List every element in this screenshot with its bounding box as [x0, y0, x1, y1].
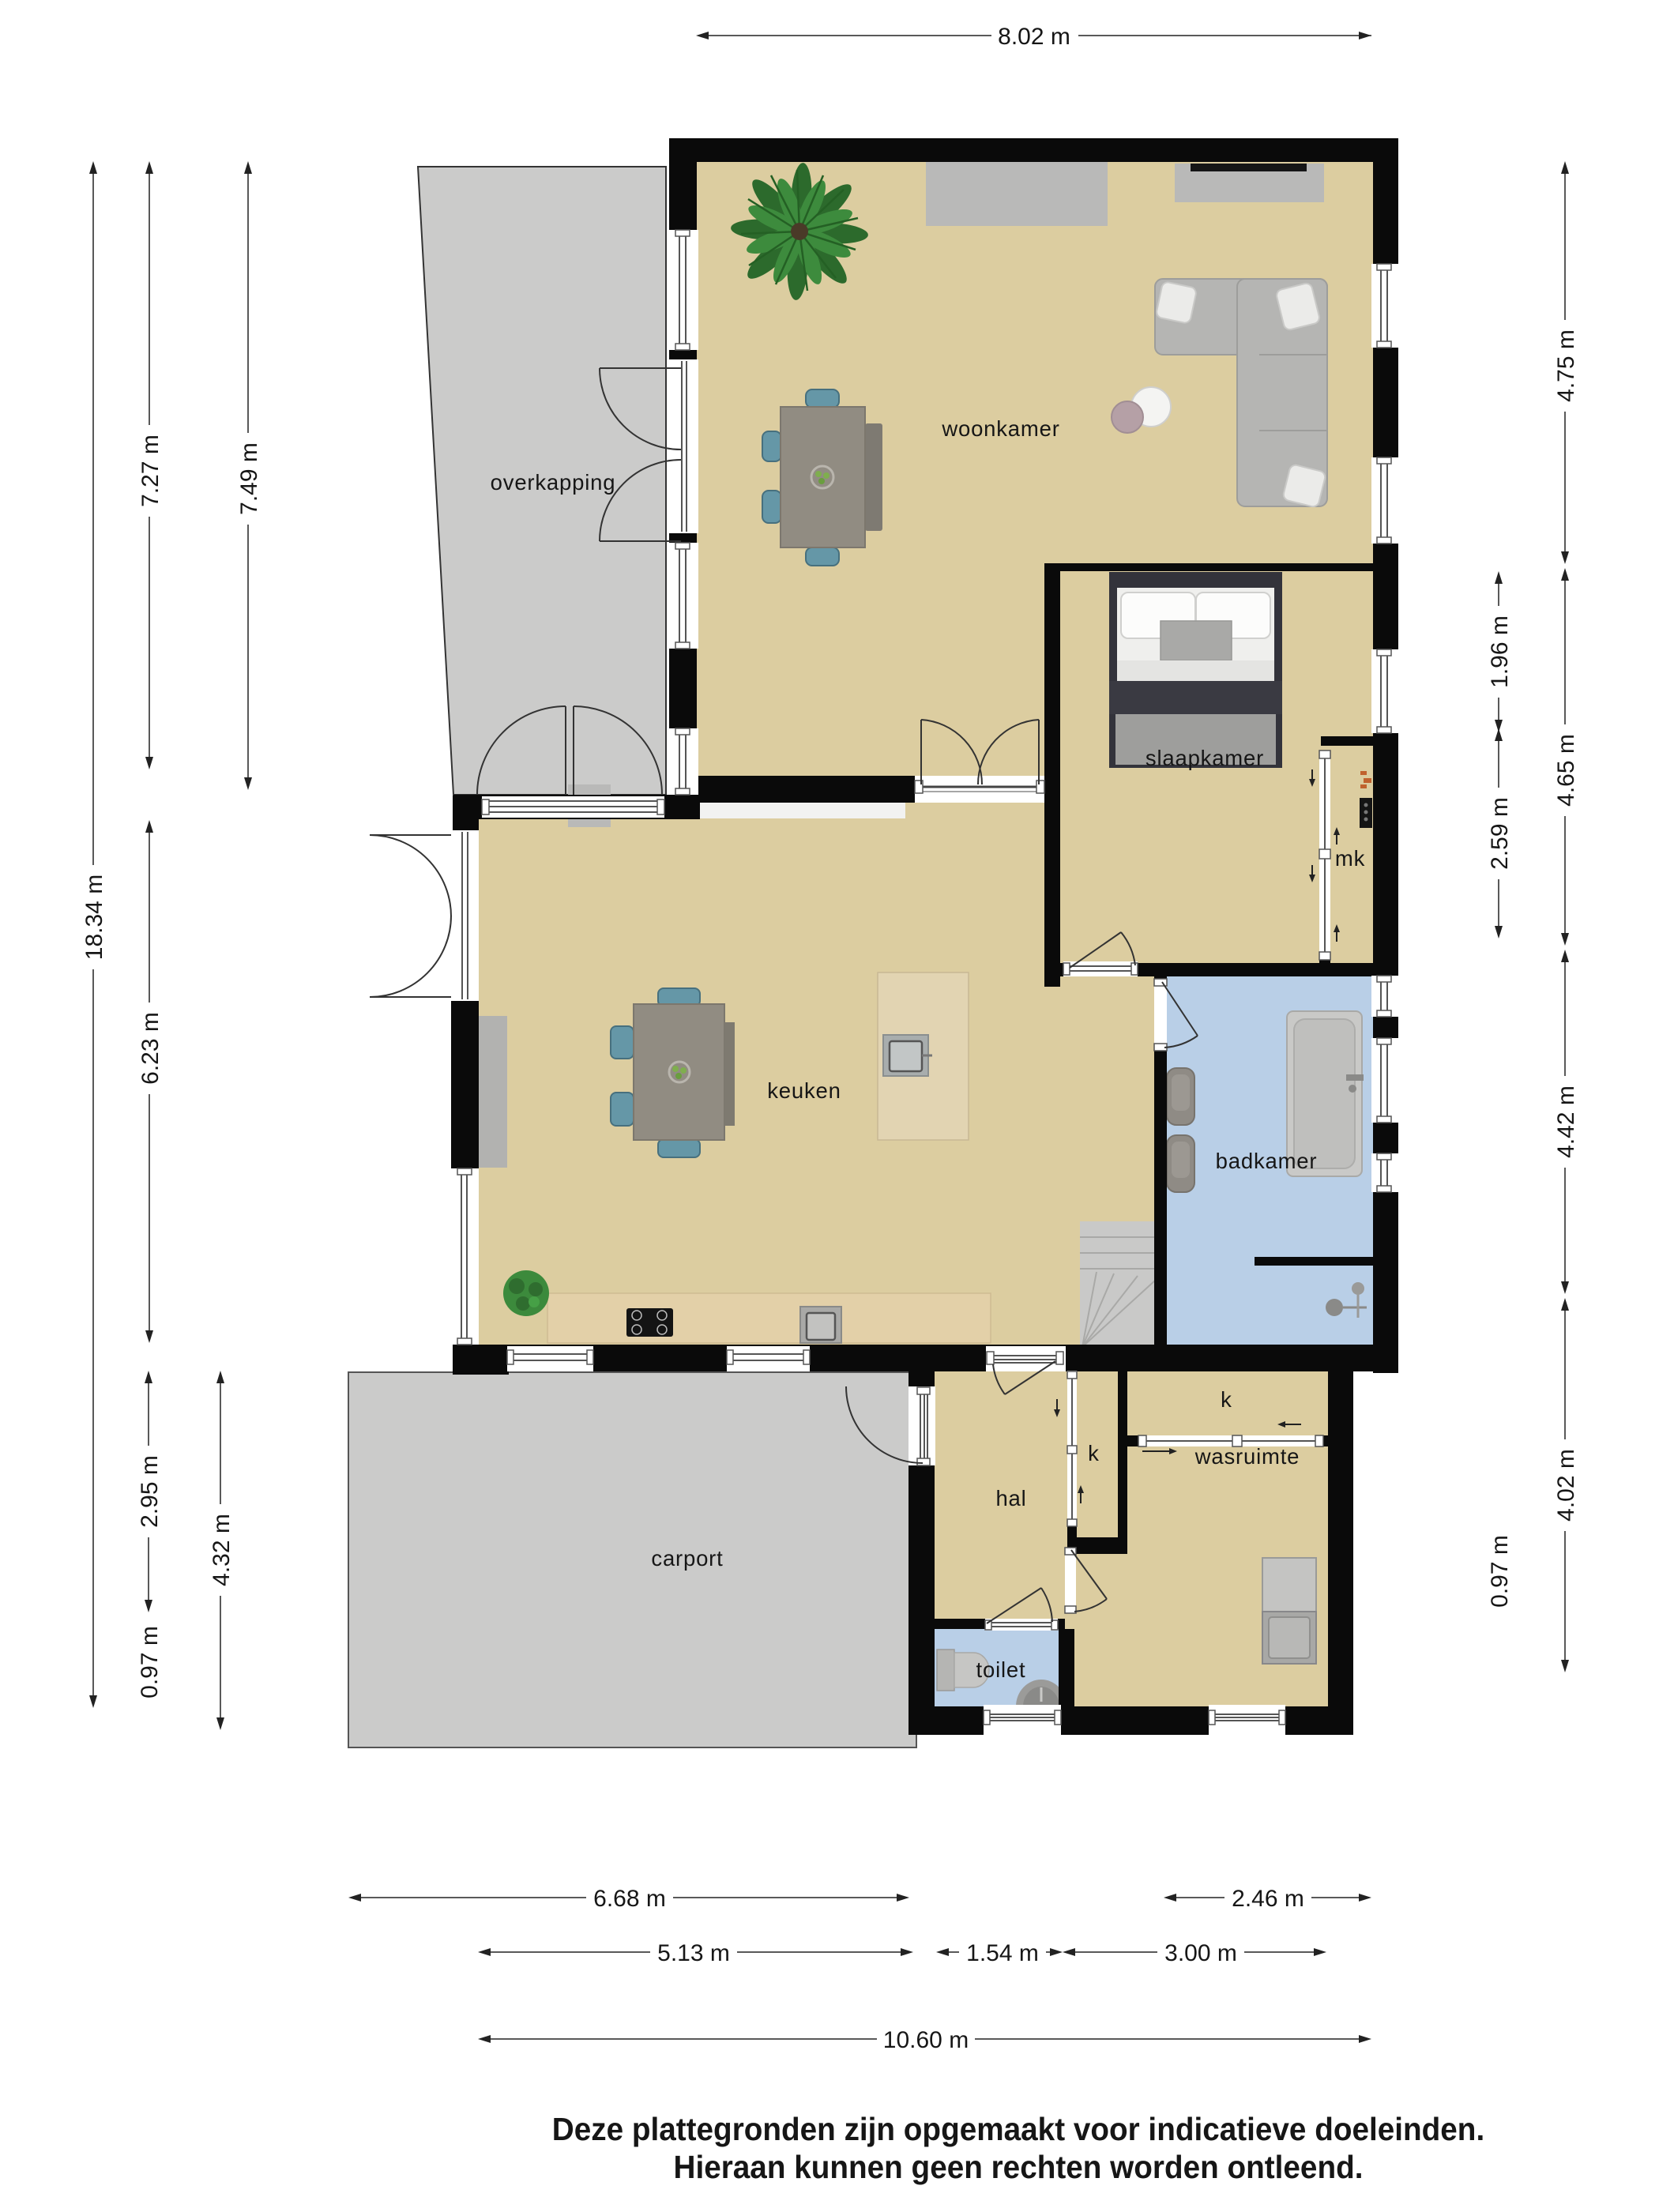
svg-text:toilet: toilet: [976, 1657, 1026, 1682]
svg-text:0.97 m: 0.97 m: [1487, 1535, 1513, 1608]
svg-text:8.02 m: 8.02 m: [998, 24, 1070, 50]
svg-text:4.32 m: 4.32 m: [209, 1514, 235, 1586]
svg-text:keuken: keuken: [767, 1078, 841, 1103]
svg-text:3.00 m: 3.00 m: [1164, 1940, 1237, 1966]
svg-text:wasruimte: wasruimte: [1194, 1444, 1300, 1469]
svg-text:6.23 m: 6.23 m: [137, 1012, 164, 1085]
svg-text:1.96 m: 1.96 m: [1487, 615, 1513, 688]
svg-text:10.60 m: 10.60 m: [883, 2027, 969, 2053]
svg-text:4.42 m: 4.42 m: [1553, 1085, 1579, 1158]
svg-text:badkamer: badkamer: [1216, 1149, 1318, 1173]
svg-text:woonkamer: woonkamer: [941, 416, 1059, 441]
svg-text:4.02 m: 4.02 m: [1553, 1449, 1579, 1522]
svg-text:1.54 m: 1.54 m: [966, 1940, 1039, 1966]
svg-text:5.13 m: 5.13 m: [657, 1940, 730, 1966]
svg-text:2.95 m: 2.95 m: [137, 1455, 163, 1528]
svg-text:Deze plattegronden zijn opgema: Deze plattegronden zijn opgemaakt voor i…: [552, 2112, 1484, 2147]
svg-text:overkapping: overkapping: [491, 470, 616, 495]
svg-text:k: k: [1221, 1387, 1232, 1412]
svg-text:Hieraan kunnen geen rechten wo: Hieraan kunnen geen rechten worden ontle…: [674, 2150, 1364, 2185]
svg-text:2.59 m: 2.59 m: [1487, 797, 1513, 870]
svg-text:mk: mk: [1335, 846, 1365, 871]
svg-text:carport: carport: [651, 1546, 723, 1571]
svg-text:slaapkamer: slaapkamer: [1145, 746, 1264, 770]
svg-text:7.49 m: 7.49 m: [236, 442, 262, 515]
svg-text:k: k: [1088, 1441, 1099, 1465]
svg-text:7.27 m: 7.27 m: [137, 434, 164, 507]
svg-text:hal: hal: [995, 1486, 1026, 1510]
svg-text:2.46 m: 2.46 m: [1232, 1886, 1304, 1912]
svg-text:0.97 m: 0.97 m: [137, 1626, 163, 1698]
svg-text:6.68 m: 6.68 m: [593, 1886, 666, 1912]
svg-text:4.65 m: 4.65 m: [1553, 734, 1579, 807]
svg-text:18.34 m: 18.34 m: [81, 875, 107, 960]
svg-text:4.75 m: 4.75 m: [1553, 329, 1579, 402]
